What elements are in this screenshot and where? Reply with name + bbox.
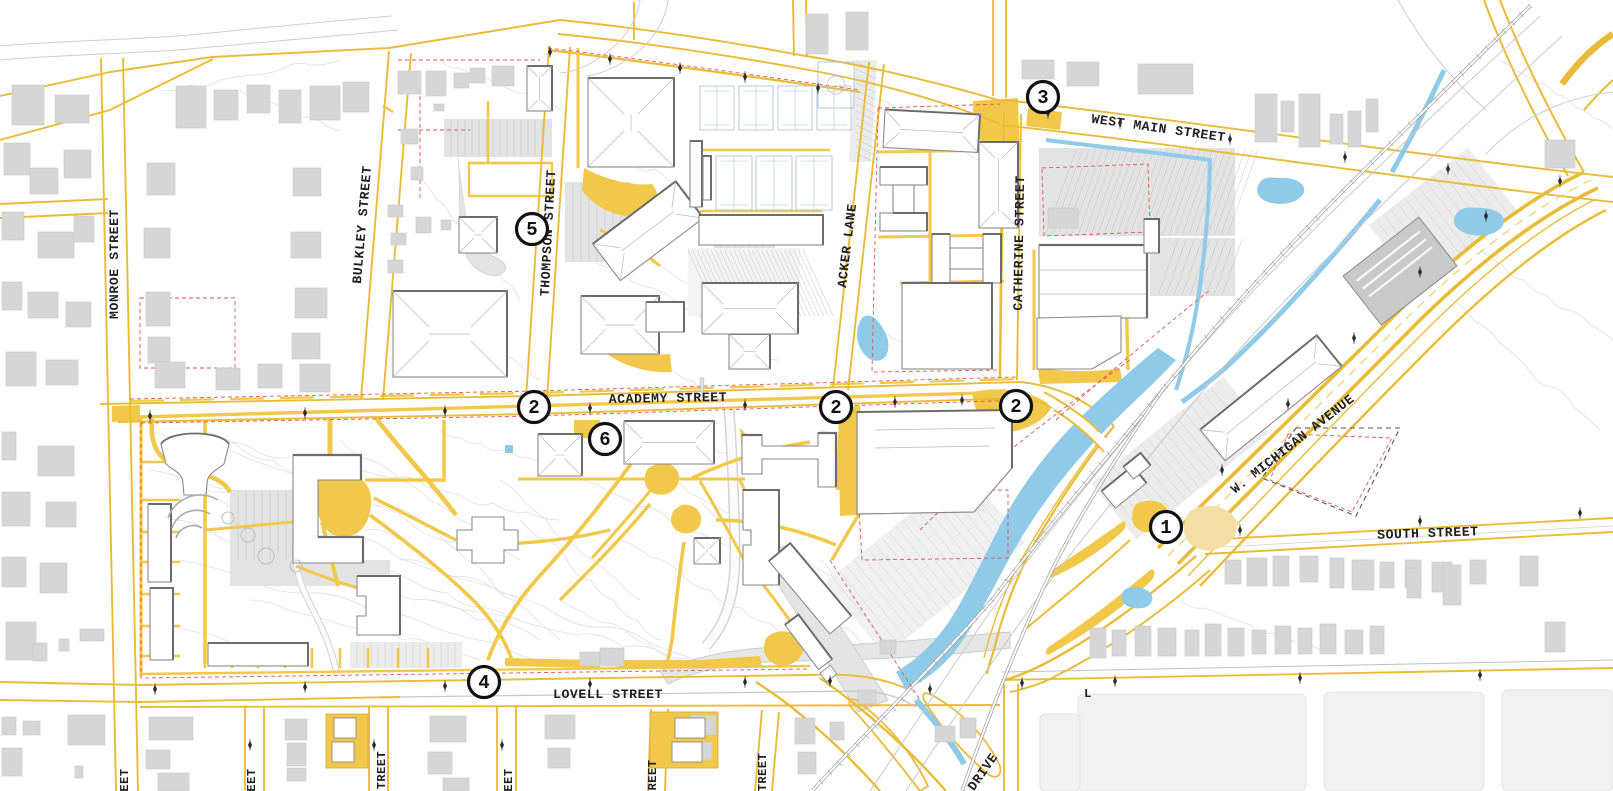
svg-text:REET: REET [646,760,660,791]
svg-text:6: 6 [599,429,610,451]
svg-text:1: 1 [1160,517,1171,539]
svg-text:2: 2 [830,397,841,419]
svg-text:2: 2 [528,397,539,419]
svg-text:3: 3 [1037,87,1048,109]
svg-text:TREET: TREET [375,751,389,790]
svg-text:LOVELL STREET: LOVELL STREET [553,687,663,702]
svg-text:2: 2 [1010,396,1021,418]
svg-text:ACADEMY STREET: ACADEMY STREET [609,390,728,407]
svg-text:CATHERINE STREET: CATHERINE STREET [1011,175,1028,311]
svg-text:TREET: TREET [756,753,770,791]
svg-text:EET: EET [502,768,516,791]
svg-text:5: 5 [526,219,537,241]
svg-text:4: 4 [478,672,489,694]
svg-text:EET: EET [245,768,259,791]
svg-text:MONROE STREET: MONROE STREET [107,209,122,319]
svg-text:L: L [1084,687,1092,701]
svg-text:EET: EET [118,768,132,791]
